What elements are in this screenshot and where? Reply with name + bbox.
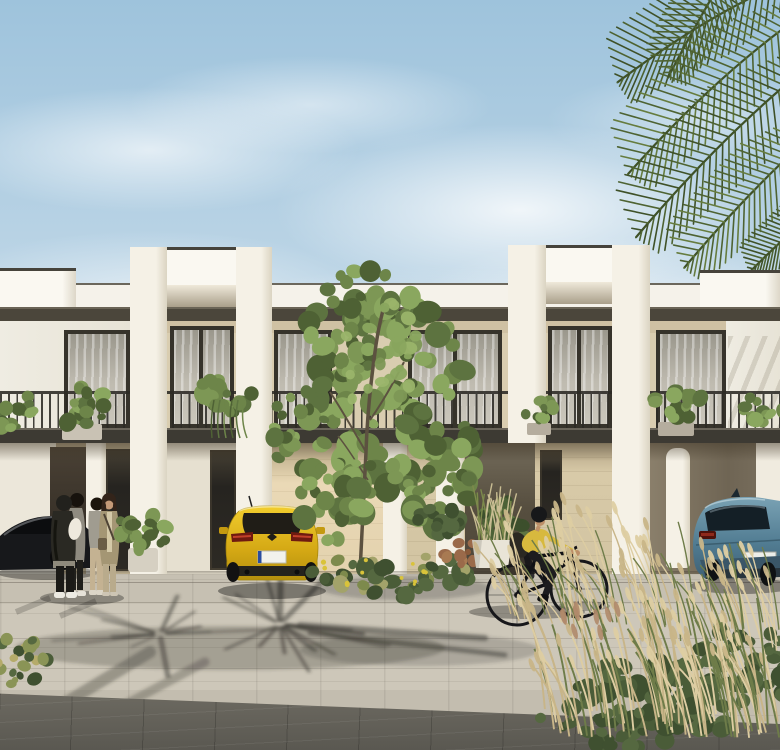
ornamental-grasses xyxy=(0,0,780,750)
architectural-render xyxy=(0,0,780,750)
